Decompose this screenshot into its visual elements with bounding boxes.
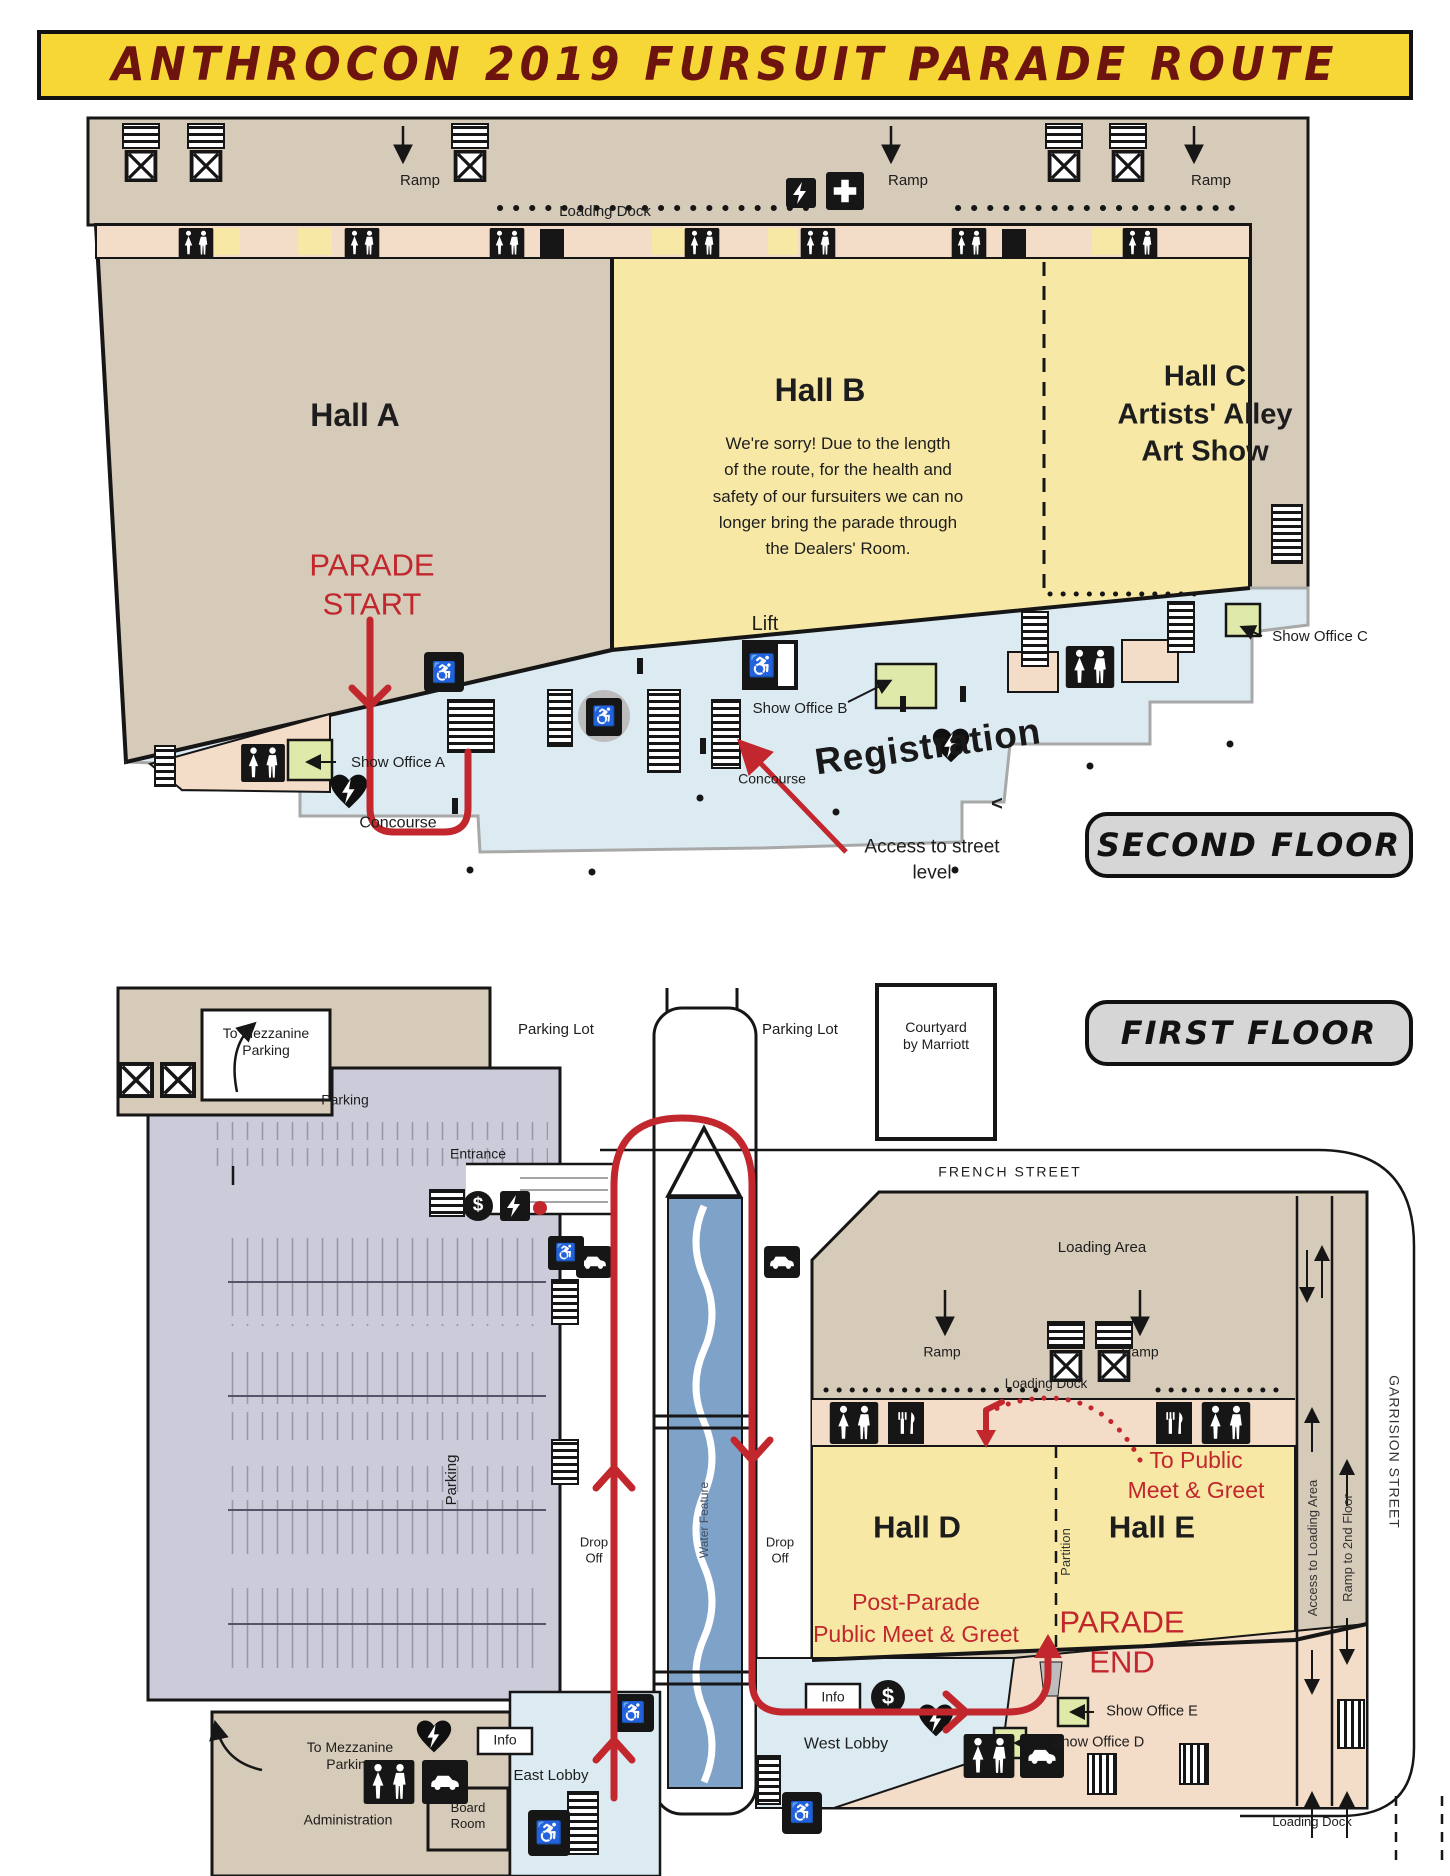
ramp-label-2f-2: Ramp (888, 172, 928, 190)
aed-icon-entrance (500, 1191, 530, 1221)
wheelchair-icon-glyph: ♿ (621, 1701, 646, 1725)
loading-area-label: Loading Area (1058, 1239, 1146, 1257)
hall-d-label: Hall D (873, 1508, 961, 1545)
west-lobby-label: West Lobby (804, 1734, 888, 1753)
courtyard-building (877, 985, 995, 1139)
entrance-label: Entrance (450, 1146, 506, 1163)
show-office-a-label: Show Office A (351, 754, 445, 772)
info-label-east: Info (493, 1732, 516, 1749)
info-label-west: Info (821, 1689, 844, 1706)
restroom-icon-hall-d (830, 1402, 878, 1444)
post-parade-label: Post-Parade Public Meet & Greet (813, 1586, 1019, 1650)
hall-a-label: Hall A (310, 396, 400, 434)
courtyard-label: Courtyard by Marriott (903, 1019, 969, 1053)
show-office-a-room (288, 740, 332, 780)
aed-icon (786, 178, 816, 208)
garrision-street-label: GARRISION STREET (1386, 1375, 1403, 1529)
water-feature (654, 1008, 756, 1814)
parking-label-vertical: Parking (443, 1455, 461, 1506)
first-aid-icon (826, 172, 864, 210)
restroom-icon-concourse-left (241, 744, 285, 782)
food-icon-hall-d (888, 1402, 924, 1444)
parade-route-map: ANTHROCON 2019 FURSUIT PARADE ROUTE SECO… (0, 0, 1450, 1876)
ramp-label-2f-1: Ramp (400, 172, 440, 190)
show-office-c-label: Show Office C (1272, 628, 1368, 646)
loading-dock-label-bottom: Loading Dock (1272, 1814, 1352, 1830)
dollar-icon-glyph: $ (473, 1195, 484, 1218)
second-floor-plan (88, 118, 1308, 876)
dollar-icon-glyph: $ (882, 1684, 894, 1710)
ramp-label-1f-2: Ramp (1121, 1344, 1158, 1361)
parking-lot-label-1: Parking Lot (518, 1021, 594, 1039)
concourse-label-mid: Concourse (738, 771, 806, 788)
show-office-d-label: Show Office D (1052, 1734, 1144, 1751)
ramp-label-2f-3: Ramp (1191, 172, 1231, 190)
concourse-label-left: Concourse (359, 813, 436, 832)
partition-label: Partition (1058, 1528, 1074, 1576)
show-office-e-label: Show Office E (1106, 1703, 1198, 1720)
second-floor-badge: SECOND FLOOR (1085, 812, 1413, 878)
wheelchair-icon-glyph: ♿ (555, 1243, 576, 1263)
loading-dock-label-2f: Loading Dock (559, 203, 651, 221)
restroom-icon-concourse-right (1066, 646, 1114, 688)
administration-label: Administration (304, 1812, 393, 1829)
hall-b-note: We're sorry! Due to the length of the ro… (713, 431, 963, 563)
hall-c-label: Hall C Artists' Alley Art Show (1117, 358, 1292, 471)
floorplan-canvas (0, 0, 1450, 1876)
food-icon-hall-e (1156, 1402, 1192, 1444)
title-banner: ANTHROCON 2019 FURSUIT PARADE ROUTE (37, 30, 1413, 100)
wheelchair-icon-glyph: ♿ (535, 1820, 562, 1846)
access-loading-label: Access to Loading Area (1305, 1480, 1321, 1617)
parade-end-label: PARADE END (1059, 1603, 1184, 1684)
french-street-label: FRENCH STREET (938, 1164, 1081, 1181)
show-office-b-label: Show Office B (753, 700, 848, 718)
to-mezzanine-label-top: To Mezzanine Parking (223, 1025, 309, 1059)
hall-b-label: Hall B (775, 371, 866, 409)
page-title: ANTHROCON 2019 FURSUIT PARADE ROUTE (111, 38, 1338, 92)
wheelchair-icon-glyph: ♿ (748, 653, 775, 679)
lift-label: Lift (752, 612, 779, 636)
board-room-label: Board Room (451, 1800, 486, 1833)
to-public-meet-greet-label: To Public Meet & Greet (1128, 1446, 1265, 1506)
show-office-c-room (1226, 604, 1260, 636)
restroom-icon-west (964, 1734, 1015, 1778)
parade-start-label: PARADE START (309, 546, 434, 624)
water-feature-label: Water Feature (697, 1482, 711, 1558)
restroom-icon-hall-e (1202, 1402, 1250, 1444)
to-mezzanine-label-bottom: To Mezzanine Parking (307, 1739, 393, 1773)
ramp-2nd-floor-label: Ramp to 2nd Floor (1340, 1494, 1356, 1602)
access-street-label: Access to street level (864, 834, 999, 885)
wheelchair-icon-glyph: ♿ (592, 707, 616, 730)
queue-arrow-glyph: < (991, 792, 1003, 816)
hall-e-label: Hall E (1109, 1508, 1195, 1545)
first-floor-badge: FIRST FLOOR (1085, 1000, 1413, 1066)
entrance-marker-dot (533, 1201, 547, 1215)
ramp-label-1f-1: Ramp (923, 1344, 960, 1361)
drop-off-label-right: Drop Off (766, 1534, 794, 1565)
loading-dock-label-1f: Loading Dock (1005, 1376, 1088, 1392)
wheelchair-icon-glyph: ♿ (432, 661, 457, 685)
wheelchair-icon-glyph: ♿ (790, 1801, 815, 1825)
east-lobby-label: East Lobby (513, 1767, 588, 1785)
parking-label-top: Parking (321, 1092, 368, 1109)
drop-off-label-left: Drop Off (580, 1534, 608, 1565)
parking-lot-label-2: Parking Lot (762, 1021, 838, 1039)
